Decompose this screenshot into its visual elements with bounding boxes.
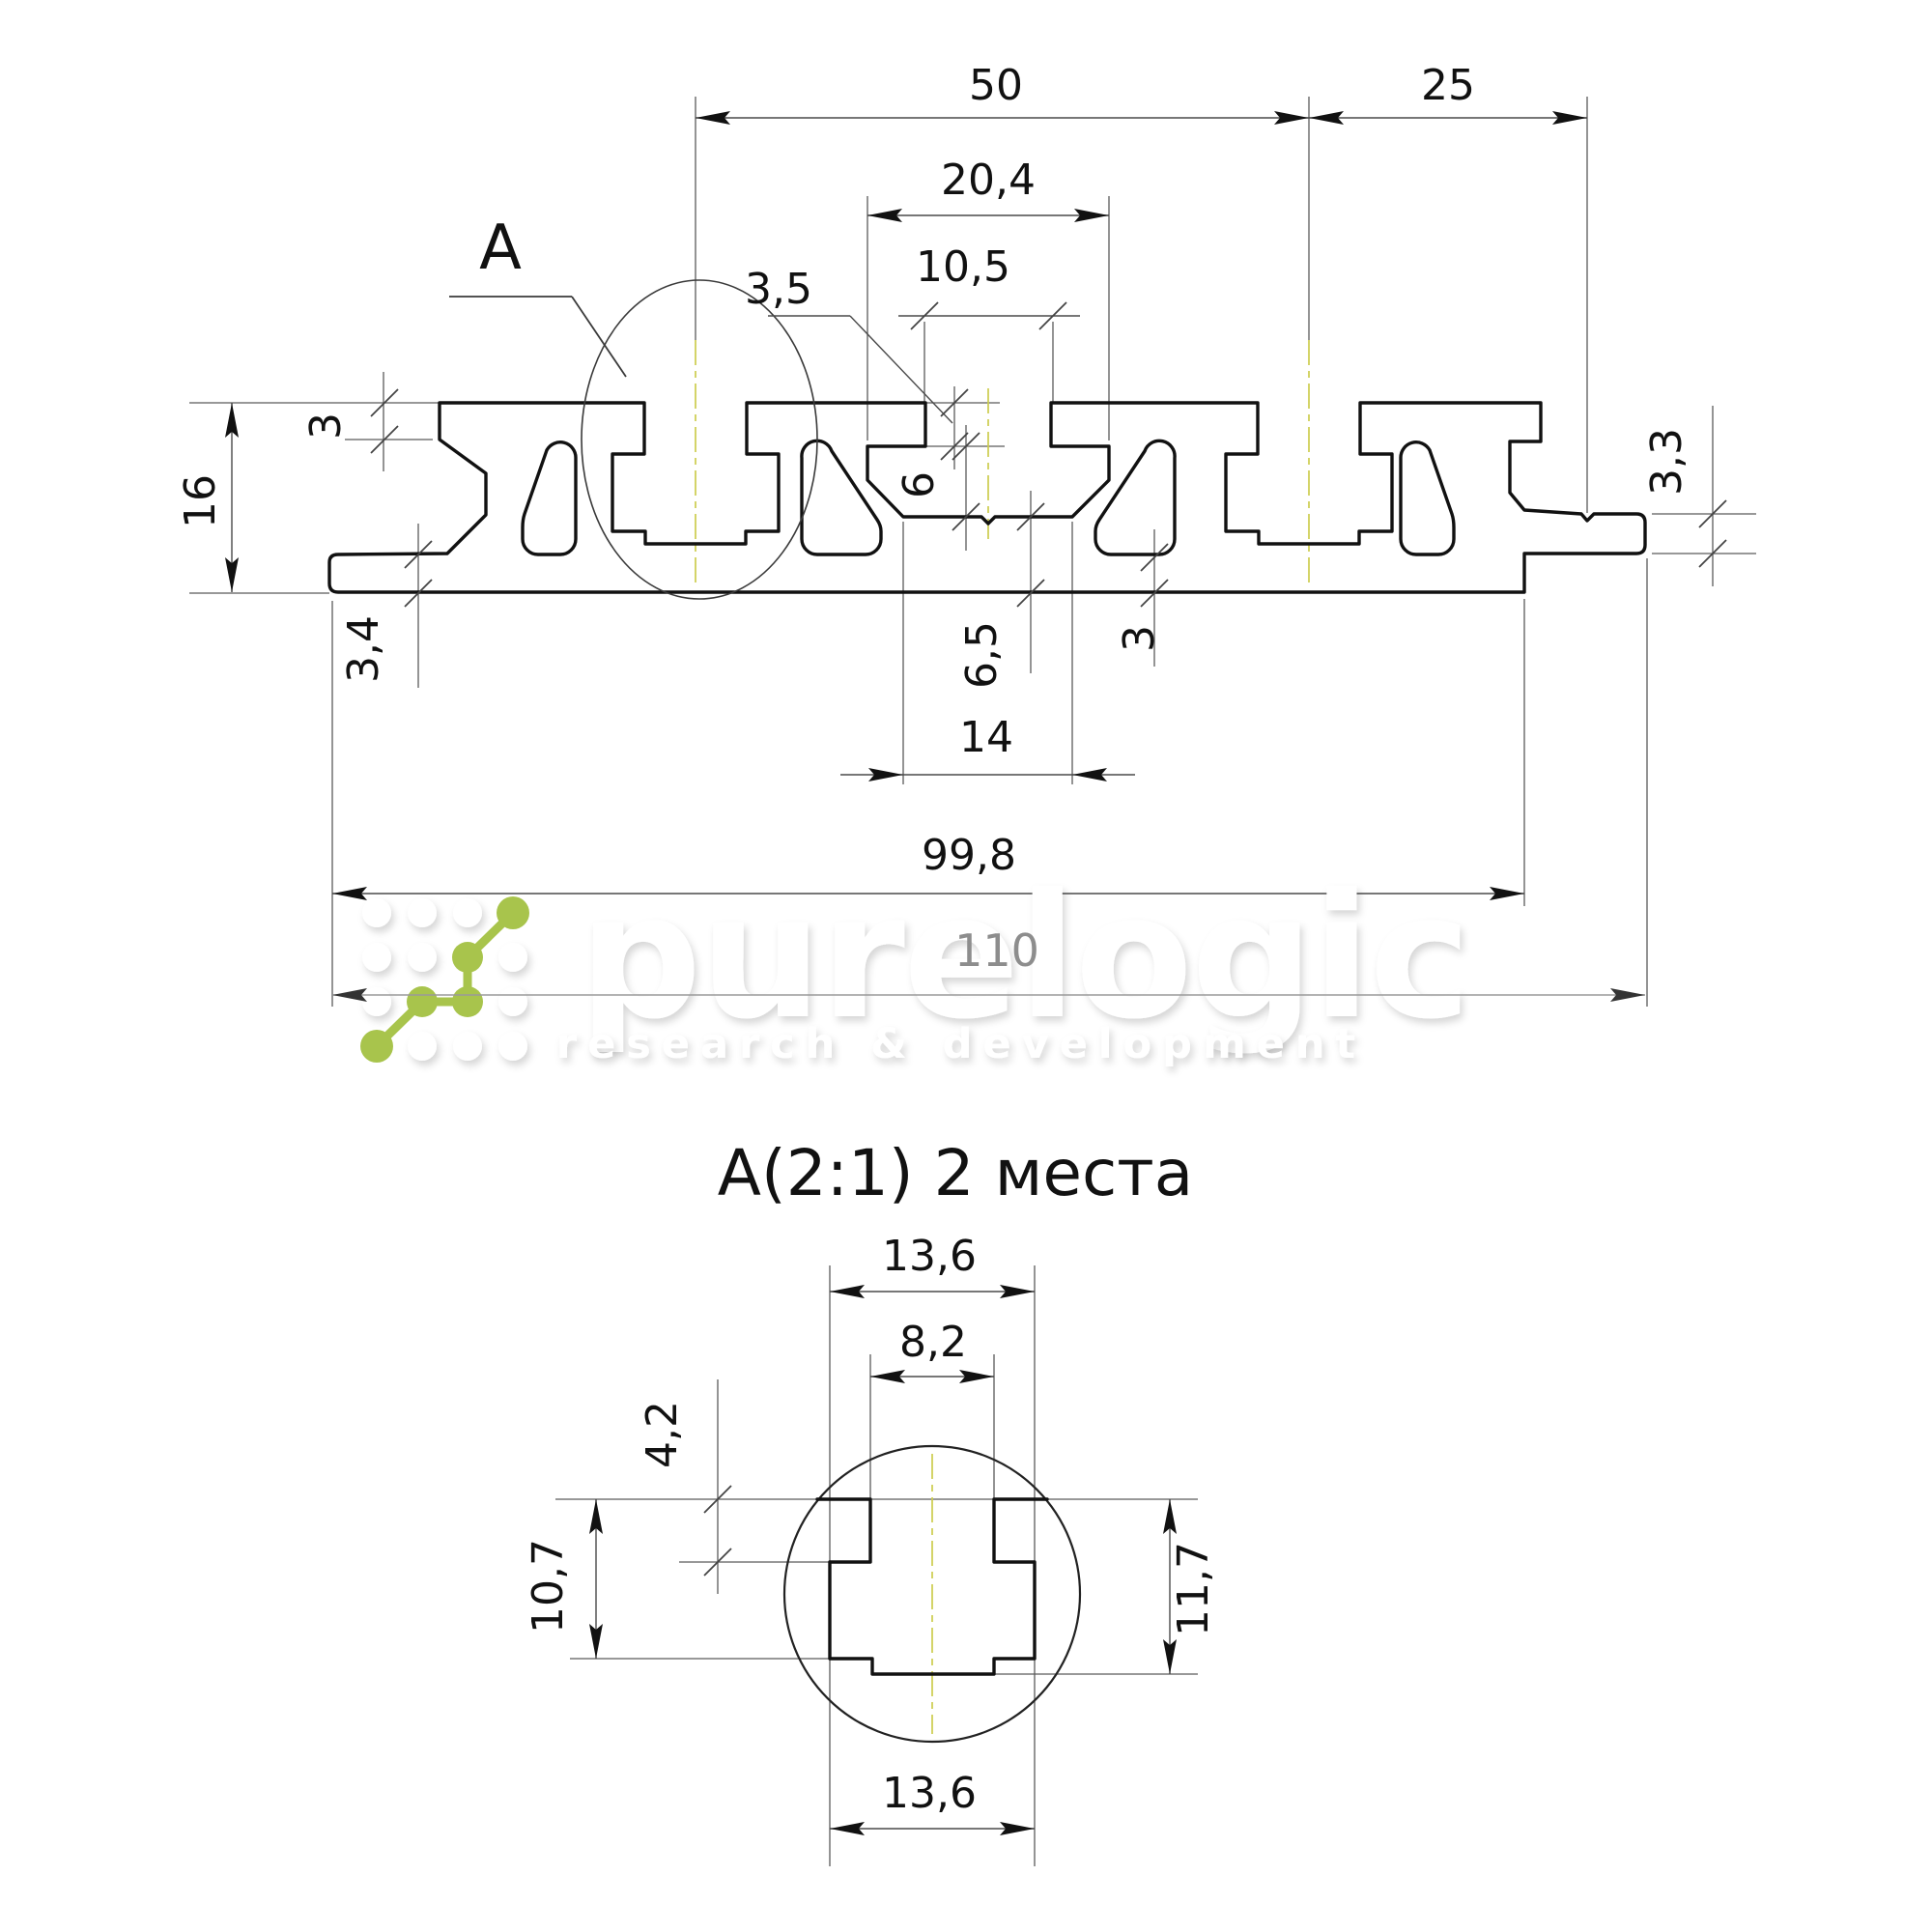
- detail-ref-label: A: [479, 213, 522, 284]
- dim-14-label: 14: [959, 713, 1013, 762]
- dim-10-7-label: 10,7: [524, 1539, 573, 1634]
- dim-3-middle-label: 3: [1115, 625, 1164, 652]
- dim-11-7: 11,7: [1163, 1499, 1218, 1674]
- detail-view: [784, 1446, 1080, 1742]
- profile-cross-section: [329, 403, 1645, 592]
- dim-3-middle: 3: [1115, 544, 1168, 652]
- watermark: purelogic research & development: [360, 857, 1469, 1068]
- dim-13-6-bottom-label: 13,6: [882, 1769, 977, 1818]
- dim-20-4-label: 20,4: [941, 156, 1036, 205]
- dim-6-label: 6: [895, 471, 944, 498]
- technical-drawing: A 50 25 20,4 10,5 3,5 3: [0, 0, 1932, 1932]
- dim-10-5-label: 10,5: [916, 242, 1010, 292]
- dim-4-2-label: 4,2: [638, 1401, 687, 1468]
- dim-3-3-label: 3,3: [1642, 428, 1691, 496]
- dim-13-6-bottom: 13,6: [830, 1769, 1035, 1835]
- extension-lines-top: [696, 97, 1587, 513]
- dim-3-5: 3,5: [745, 265, 968, 460]
- dim-3-label: 3: [301, 412, 351, 440]
- detail-circle: [582, 280, 817, 599]
- slot-hole-4: [1401, 442, 1454, 554]
- dim-3-4-label: 3,4: [339, 615, 388, 683]
- dim-50-25: 50 25: [696, 61, 1587, 125]
- detail-title: A(2:1) 2 места: [718, 1136, 1193, 1210]
- dim-16-label: 16: [176, 474, 225, 528]
- dim-10-7: 10,7: [524, 1499, 603, 1659]
- dim-50: 50: [969, 61, 1023, 110]
- dim-110-label: 110: [954, 924, 1039, 977]
- dim-16: 16: [176, 403, 239, 592]
- drawing-canvas: A 50 25 20,4 10,5 3,5 3: [0, 0, 1932, 1932]
- slot-hole-1: [523, 442, 576, 554]
- detail-extension-lines: [555, 1265, 1198, 1866]
- dim-8-2-label: 8,2: [899, 1318, 967, 1367]
- dim-13-6-top-label: 13,6: [882, 1232, 977, 1281]
- dim-11-7-label: 11,7: [1169, 1542, 1218, 1636]
- dim-13-6-top: 13,6: [830, 1232, 1035, 1298]
- dim-3-5-label: 3,5: [745, 265, 812, 314]
- dim-3-3: 3,3: [1642, 428, 1726, 567]
- dim-25: 25: [1421, 61, 1475, 110]
- dim-10-5: 10,5: [898, 242, 1080, 329]
- dim-8-2: 8,2: [870, 1318, 994, 1383]
- dim-6-5-label: 6,5: [957, 621, 1007, 689]
- watermark-tagline: research & development: [556, 1020, 1366, 1068]
- dim-14: 14: [840, 713, 1135, 781]
- dim-20-4: 20,4: [867, 156, 1109, 222]
